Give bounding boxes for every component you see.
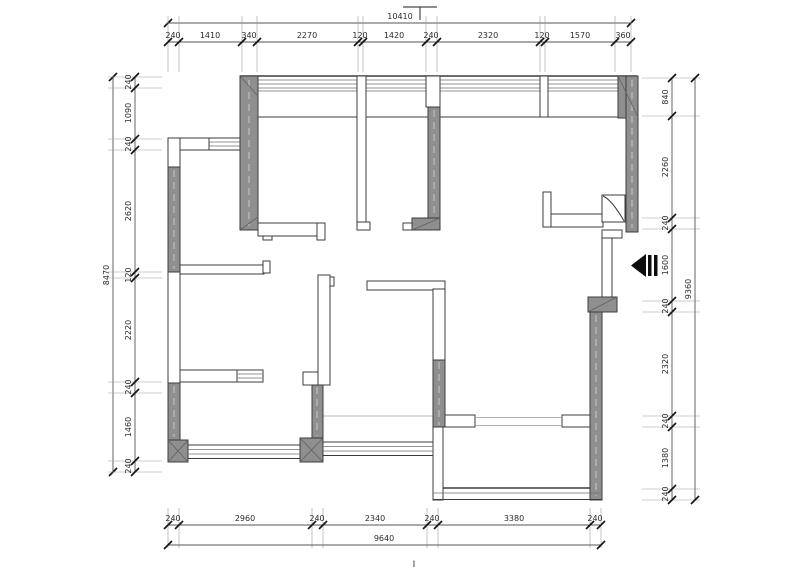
dimension-label: 2260 <box>661 157 670 177</box>
dimension-label: 240 <box>423 31 438 40</box>
wall <box>303 372 318 385</box>
wall <box>180 138 210 150</box>
section-mark-bottom: I <box>413 560 416 570</box>
dimension-label: 240 <box>587 514 602 523</box>
window-mullion <box>540 76 548 117</box>
dimension-label: 1570 <box>570 31 590 40</box>
wall <box>443 415 475 427</box>
dimension-label: 9640 <box>374 534 394 543</box>
dimension-label: 8470 <box>102 265 111 285</box>
wall <box>357 76 366 230</box>
dimension-label: 240 <box>124 136 133 151</box>
dimension-label: 2340 <box>365 514 385 523</box>
dimension-label: 2320 <box>661 354 670 374</box>
flue-shaft <box>602 195 625 222</box>
closet-wall <box>551 214 603 227</box>
dimension-label: 240 <box>124 458 133 473</box>
entry-arrow-icon <box>631 254 658 277</box>
dimension-label: 1090 <box>124 103 133 123</box>
wall <box>433 289 445 361</box>
dimension-label: 360 <box>615 31 630 40</box>
partition-walls <box>168 76 622 500</box>
dimension-label: 1600 <box>661 255 670 275</box>
wall <box>258 223 318 236</box>
dimension-label: 240 <box>661 413 670 428</box>
floor-plan-drawing: I 10410240141034022701201420240232012015… <box>0 0 800 573</box>
balcony-side-wall <box>433 427 443 500</box>
window-pier <box>426 76 440 107</box>
dimension-label: 240 <box>424 514 439 523</box>
dimension-label: 1380 <box>661 448 670 468</box>
entry-door-opening <box>602 238 612 298</box>
dimension-label: 240 <box>661 486 670 501</box>
dimension-label: 840 <box>661 89 670 104</box>
balcony-edge <box>433 488 602 500</box>
dimension-label: 240 <box>661 215 670 230</box>
dimension-label: 240 <box>165 31 180 40</box>
dimension-label: 120 <box>124 267 133 282</box>
dimension-label: 240 <box>309 514 324 523</box>
closet-wall <box>543 192 551 227</box>
window-frame <box>209 138 241 150</box>
door-jamb <box>403 223 412 230</box>
dimension-label: 240 <box>165 514 180 523</box>
dimension-label: 340 <box>241 31 256 40</box>
dimension-label: 2270 <box>297 31 317 40</box>
wall <box>168 272 180 383</box>
dimension-label: 2320 <box>478 31 498 40</box>
wall <box>168 138 180 168</box>
wall <box>357 222 370 230</box>
wall <box>318 275 330 385</box>
dimension-label: 240 <box>124 379 133 394</box>
wall <box>602 230 622 238</box>
dimension-label: 120 <box>534 31 549 40</box>
dimension-label: 2620 <box>124 201 133 221</box>
dimension-label: 1420 <box>384 31 404 40</box>
dimension-label: 2960 <box>235 514 255 523</box>
dimension-label: 120 <box>352 31 367 40</box>
wall <box>317 223 325 240</box>
dimension-label: 1410 <box>200 31 220 40</box>
dimension-label: 240 <box>124 74 133 89</box>
dimension-label: 9360 <box>684 279 693 299</box>
wall <box>263 261 270 273</box>
wall <box>562 415 592 427</box>
interior-window <box>237 370 263 382</box>
dimension-label: 1460 <box>124 417 133 437</box>
wall <box>330 277 334 286</box>
dimension-label: 240 <box>661 298 670 313</box>
section-mark-bottom-label: I <box>413 560 416 570</box>
wall <box>180 265 264 274</box>
wall <box>180 370 238 382</box>
dimension-label: 10410 <box>387 12 412 21</box>
dimension-label: 2220 <box>124 320 133 340</box>
dimension-label: 3380 <box>504 514 524 523</box>
wall <box>263 236 272 240</box>
